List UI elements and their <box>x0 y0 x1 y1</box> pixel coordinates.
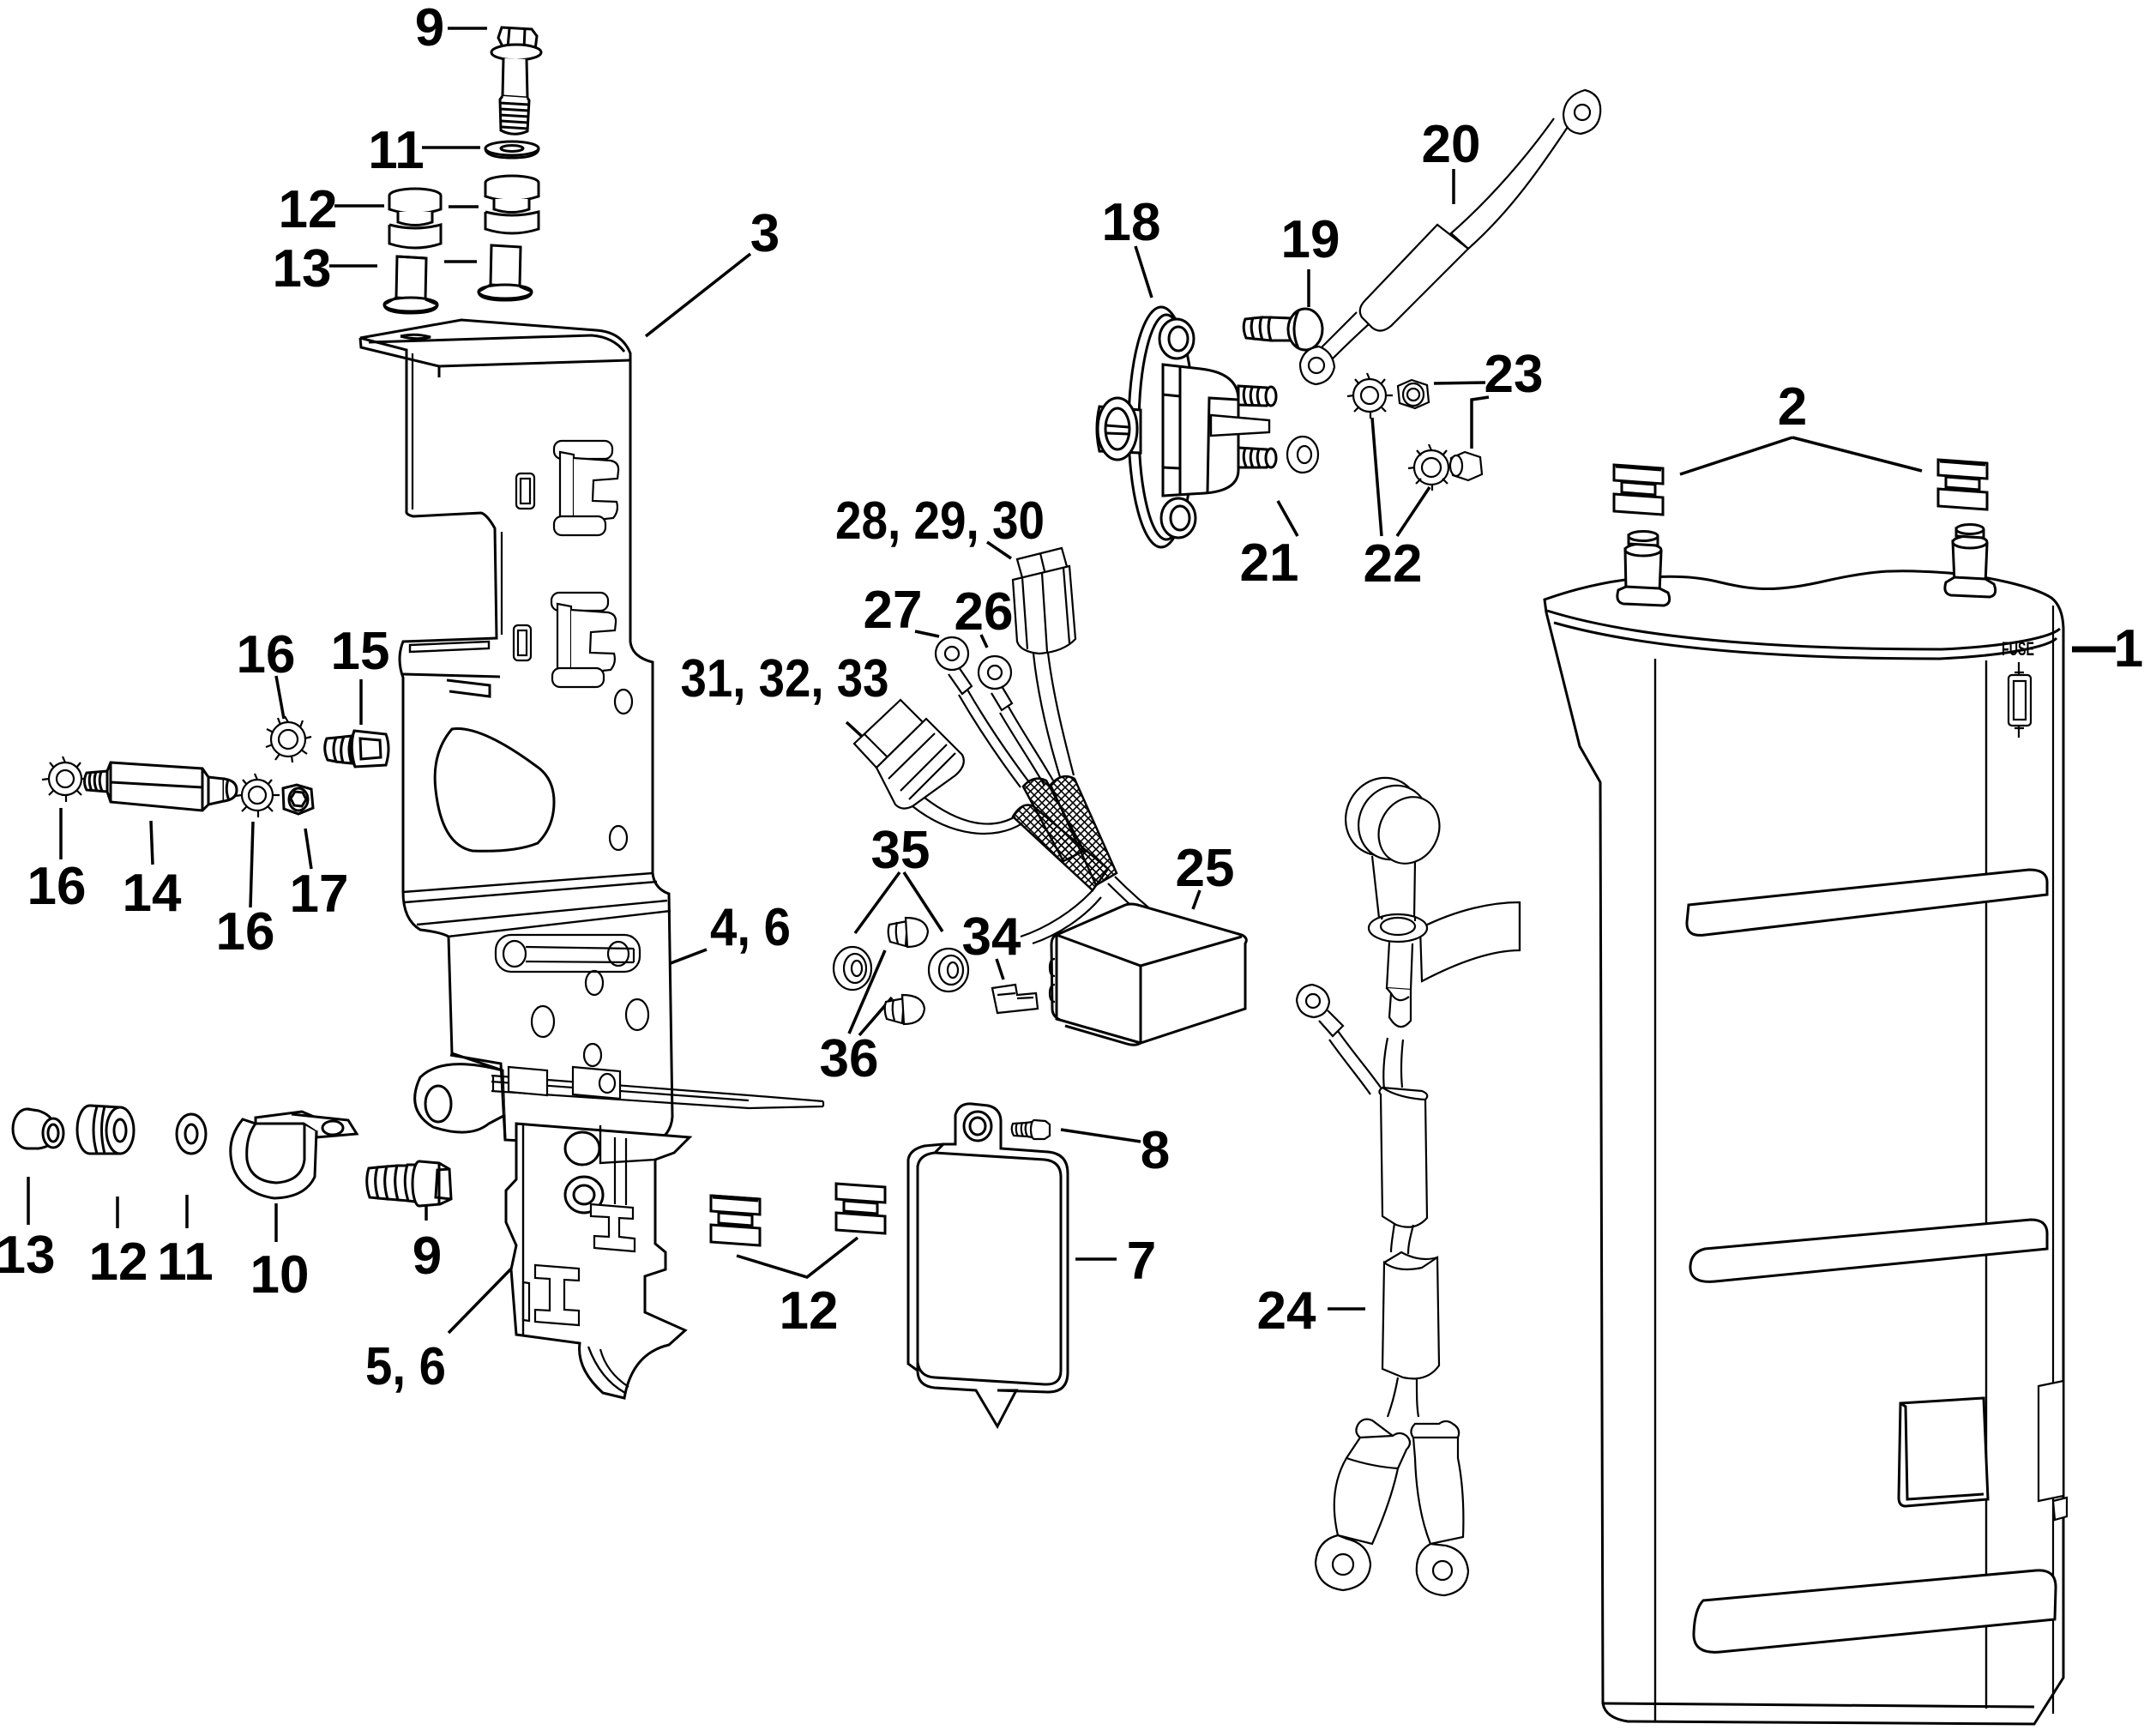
svg-text:31, 32, 33: 31, 32, 33 <box>681 649 889 708</box>
svg-text:27: 27 <box>864 581 923 640</box>
svg-text:35: 35 <box>871 821 930 880</box>
svg-text:16: 16 <box>27 857 87 916</box>
svg-text:10: 10 <box>250 1245 310 1305</box>
svg-text:25: 25 <box>1176 839 1235 898</box>
svg-text:14: 14 <box>123 864 182 923</box>
svg-text:12: 12 <box>780 1281 839 1341</box>
svg-text:4, 6: 4, 6 <box>710 898 791 957</box>
svg-text:9: 9 <box>415 0 444 57</box>
svg-text:16: 16 <box>237 625 296 684</box>
svg-text:24: 24 <box>1257 1281 1316 1341</box>
svg-text:21: 21 <box>1240 533 1299 593</box>
svg-text:26: 26 <box>955 582 1014 642</box>
svg-text:18: 18 <box>1102 193 1161 252</box>
svg-text:12: 12 <box>89 1233 148 1292</box>
svg-text:20: 20 <box>1422 115 1481 174</box>
svg-text:2: 2 <box>1778 377 1807 437</box>
svg-text:11: 11 <box>157 1233 214 1292</box>
svg-text:7: 7 <box>1127 1232 1156 1291</box>
svg-text:12: 12 <box>279 180 338 239</box>
svg-text:16: 16 <box>216 902 275 961</box>
svg-text:22: 22 <box>1364 534 1423 594</box>
svg-text:28, 29, 30: 28, 29, 30 <box>835 491 1045 551</box>
svg-text:11: 11 <box>368 121 425 180</box>
svg-text:1: 1 <box>2114 619 2143 678</box>
svg-text:5, 6: 5, 6 <box>365 1337 446 1396</box>
svg-text:8: 8 <box>1141 1121 1170 1180</box>
svg-text:FUSE: FUSE <box>2002 638 2034 660</box>
svg-text:34: 34 <box>962 907 1021 967</box>
svg-text:13: 13 <box>0 1226 55 1285</box>
svg-text:9: 9 <box>413 1227 442 1286</box>
svg-text:13: 13 <box>273 239 332 298</box>
svg-text:19: 19 <box>1281 210 1340 269</box>
svg-text:23: 23 <box>1485 345 1544 404</box>
svg-text:17: 17 <box>290 865 349 924</box>
svg-text:3: 3 <box>750 204 780 263</box>
svg-text:36: 36 <box>820 1029 879 1088</box>
svg-text:15: 15 <box>331 622 390 681</box>
